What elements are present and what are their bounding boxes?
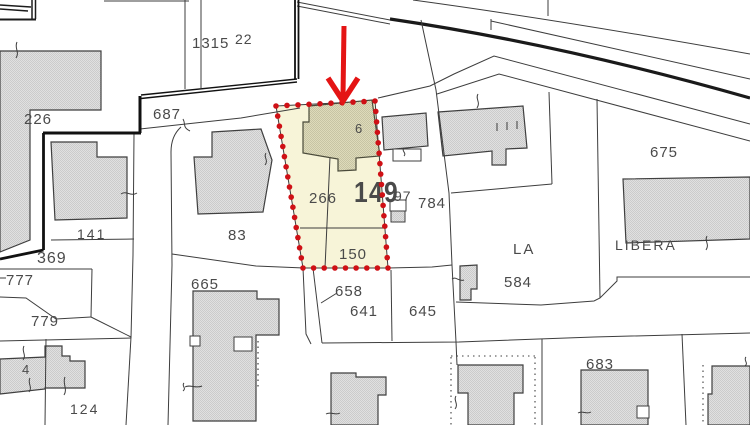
svg-text:141: 141 xyxy=(77,226,106,242)
svg-text:LA: LA xyxy=(513,241,535,258)
svg-text:369: 369 xyxy=(37,250,67,267)
svg-text:150: 150 xyxy=(339,246,367,263)
svg-text:226: 226 xyxy=(24,111,52,128)
svg-text:665: 665 xyxy=(191,276,219,293)
svg-text:641: 641 xyxy=(350,303,378,320)
svg-text:779: 779 xyxy=(31,313,59,330)
svg-text:584: 584 xyxy=(504,274,532,291)
svg-text:124: 124 xyxy=(70,401,99,417)
svg-text:1315: 1315 xyxy=(192,35,229,52)
svg-text:784: 784 xyxy=(418,195,446,212)
svg-text:6: 6 xyxy=(355,121,363,136)
svg-text:22: 22 xyxy=(235,31,253,47)
svg-text:83: 83 xyxy=(228,227,247,244)
svg-text:658: 658 xyxy=(335,283,363,300)
svg-text:687: 687 xyxy=(153,106,181,123)
svg-text:777: 777 xyxy=(6,272,34,289)
svg-text:149: 149 xyxy=(354,176,399,208)
svg-text:LIBERA: LIBERA xyxy=(615,237,677,253)
svg-text:645: 645 xyxy=(409,303,437,320)
svg-text:675: 675 xyxy=(650,144,678,161)
svg-text:683: 683 xyxy=(586,356,614,373)
svg-text:266: 266 xyxy=(309,190,337,207)
svg-text:4: 4 xyxy=(22,362,30,377)
